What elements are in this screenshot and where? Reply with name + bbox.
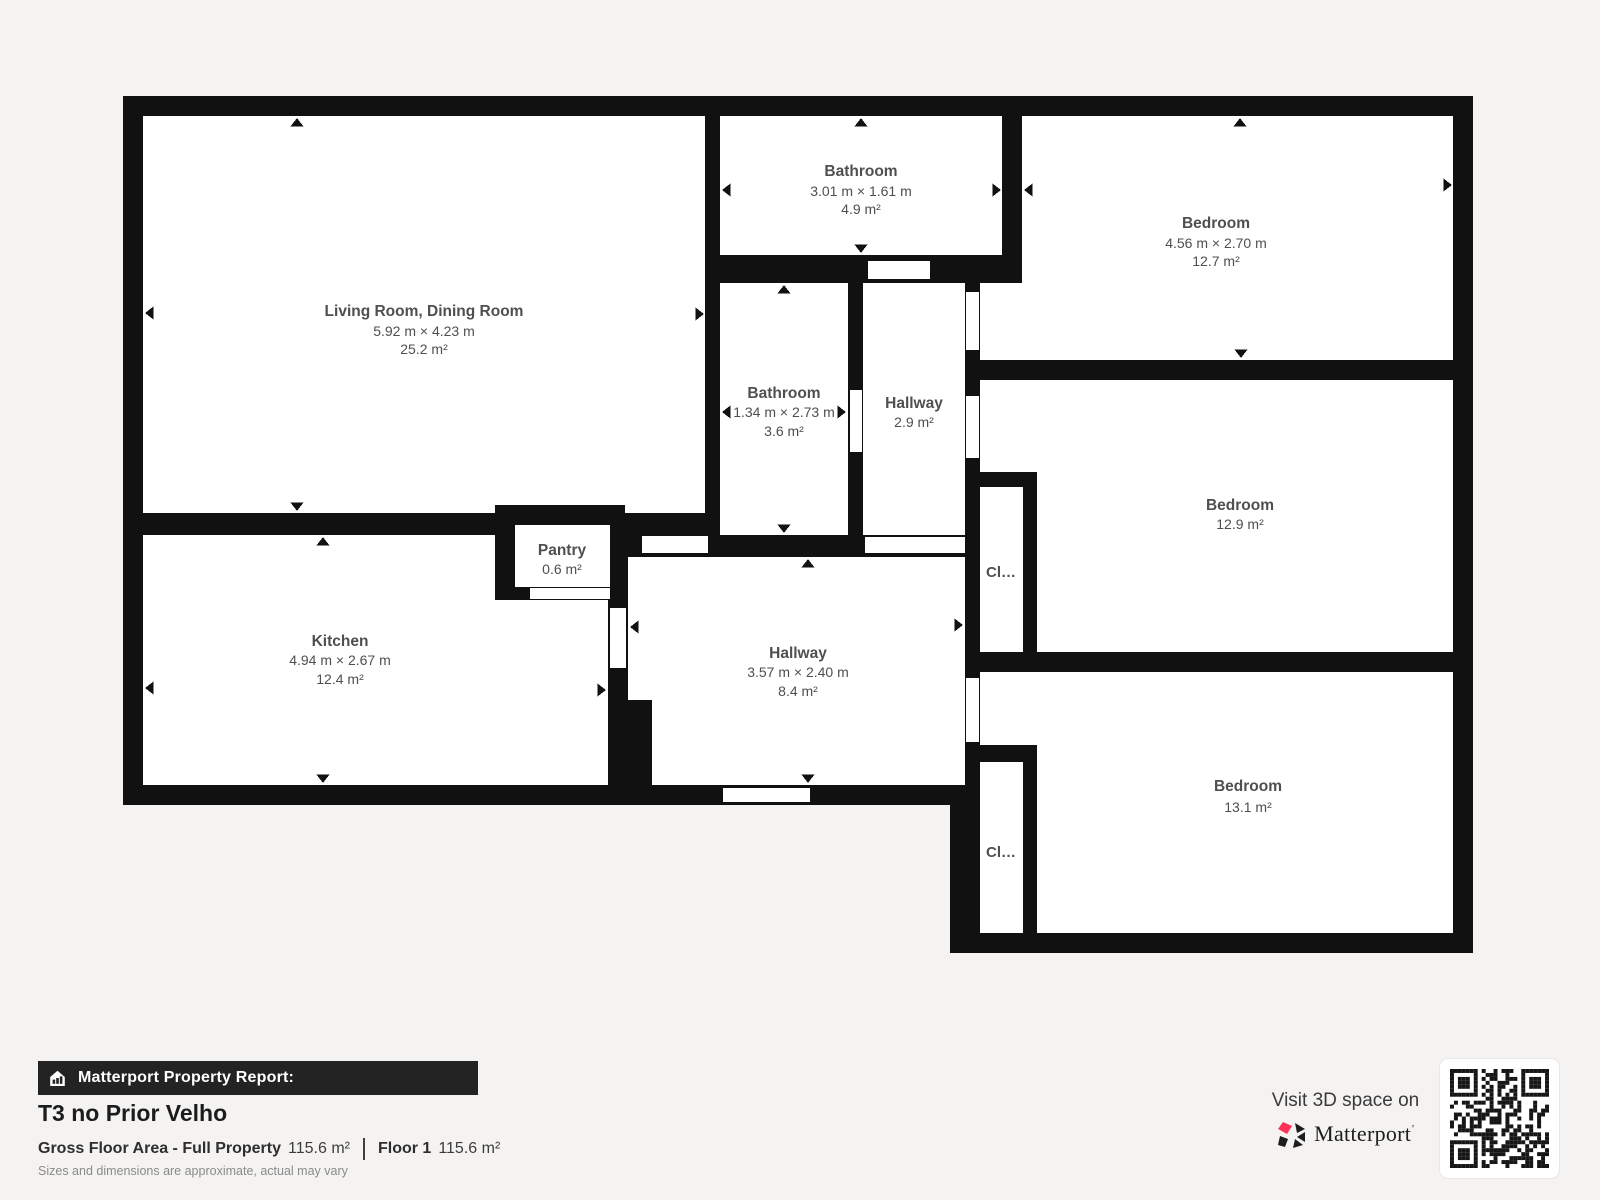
qr-code-pattern	[1450, 1069, 1549, 1168]
svg-text:Cl…: Cl…	[986, 844, 1016, 861]
door-opening	[966, 678, 979, 742]
svg-text:Cl…: Cl…	[986, 564, 1016, 581]
floor-label: Floor 1	[378, 1140, 431, 1158]
area-summary: Gross Floor Area - Full Property 115.6 m…	[38, 1138, 500, 1160]
gross-floor-area-label: Gross Floor Area - Full Property	[38, 1140, 281, 1158]
floor-value: 115.6 m²	[438, 1140, 500, 1158]
matterport-wordmark: Matterport’	[1314, 1121, 1415, 1147]
door-opening	[610, 608, 626, 668]
door-opening	[865, 537, 965, 553]
svg-text:12.9 m²: 12.9 m²	[1216, 516, 1264, 532]
room-label-closet-2: Cl…	[986, 844, 1016, 861]
gross-floor-area-value: 115.6 m²	[288, 1140, 350, 1158]
door-opening	[850, 390, 862, 452]
svg-text:5.92 m × 4.23 m: 5.92 m × 4.23 m	[373, 323, 475, 339]
report-banner-label: Matterport Property Report:	[78, 1069, 294, 1087]
qr-code[interactable]	[1440, 1059, 1559, 1178]
door-opening	[966, 396, 979, 458]
door-opening	[642, 536, 708, 553]
property-title: T3 no Prior Velho	[38, 1100, 227, 1127]
svg-text:Bedroom: Bedroom	[1214, 778, 1282, 795]
room-area-bedroom-3	[980, 672, 1453, 933]
kitchen-wall-jog	[628, 700, 652, 785]
floorplan-canvas: Living Room, Dining Room 5.92 m × 4.23 m…	[0, 0, 1600, 1000]
svg-text:13.1 m²: 13.1 m²	[1224, 799, 1272, 815]
svg-text:Bedroom: Bedroom	[1206, 497, 1274, 514]
svg-text:12.7 m²: 12.7 m²	[1192, 253, 1240, 269]
svg-text:Bathroom: Bathroom	[747, 385, 820, 402]
svg-text:2.9 m²: 2.9 m²	[894, 414, 934, 430]
svg-text:3.6 m²: 3.6 m²	[764, 423, 804, 439]
report-banner: Matterport Property Report:	[38, 1061, 478, 1095]
svg-text:Kitchen: Kitchen	[312, 633, 369, 650]
svg-text:Bedroom: Bedroom	[1182, 215, 1250, 232]
room-area-bedroom-1-alcove	[980, 283, 1022, 360]
svg-text:3.01 m × 1.61 m: 3.01 m × 1.61 m	[810, 183, 912, 199]
house-bar-chart-icon	[48, 1069, 67, 1088]
disclaimer-text: Sizes and dimensions are approximate, ac…	[38, 1164, 348, 1178]
matterport-report-page: Living Room, Dining Room 5.92 m × 4.23 m…	[0, 0, 1600, 1200]
svg-text:Pantry: Pantry	[538, 542, 587, 559]
svg-text:Living Room, Dining Room: Living Room, Dining Room	[325, 303, 524, 320]
svg-text:4.9 m²: 4.9 m²	[841, 201, 881, 217]
svg-text:12.4 m²: 12.4 m²	[316, 671, 364, 687]
svg-text:8.4 m²: 8.4 m²	[778, 683, 818, 699]
matterport-pinwheel-icon	[1276, 1119, 1306, 1149]
trademark-mark: ’	[1411, 1124, 1415, 1135]
svg-text:4.94 m × 2.67 m: 4.94 m × 2.67 m	[289, 652, 391, 668]
svg-text:4.56 m × 2.70 m: 4.56 m × 2.70 m	[1165, 235, 1267, 251]
divider	[363, 1138, 365, 1160]
svg-text:Hallway: Hallway	[885, 395, 943, 412]
door-opening	[723, 788, 810, 802]
svg-text:Bathroom: Bathroom	[824, 163, 897, 180]
visit-3d-block: Visit 3D space on Matterport’	[1248, 1090, 1443, 1149]
door-opening	[966, 292, 979, 350]
matterport-logo[interactable]: Matterport’	[1248, 1119, 1443, 1149]
door-opening	[530, 588, 610, 599]
door-opening	[868, 261, 930, 279]
svg-text:1.34 m × 2.73 m: 1.34 m × 2.73 m	[733, 404, 835, 420]
room-label-closet-1: Cl…	[986, 564, 1016, 581]
svg-text:3.57 m × 2.40 m: 3.57 m × 2.40 m	[747, 664, 849, 680]
svg-text:25.2 m²: 25.2 m²	[400, 341, 448, 357]
visit-3d-label: Visit 3D space on	[1248, 1090, 1443, 1112]
svg-text:Hallway: Hallway	[769, 645, 827, 662]
svg-text:0.6 m²: 0.6 m²	[542, 561, 582, 577]
